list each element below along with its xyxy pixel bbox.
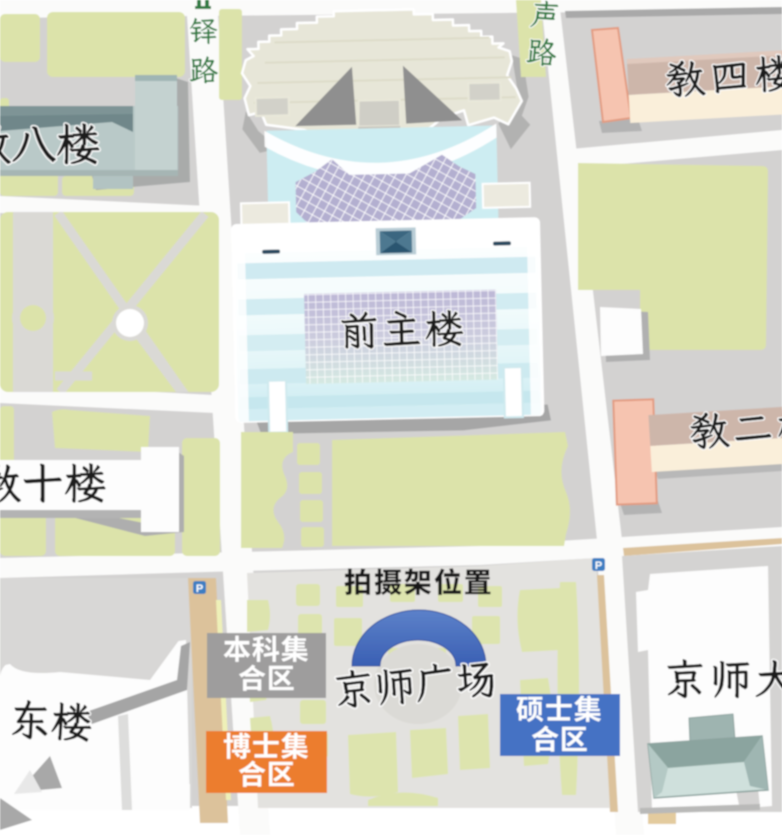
- svg-text:P: P: [196, 583, 203, 595]
- svg-text:P: P: [595, 560, 602, 572]
